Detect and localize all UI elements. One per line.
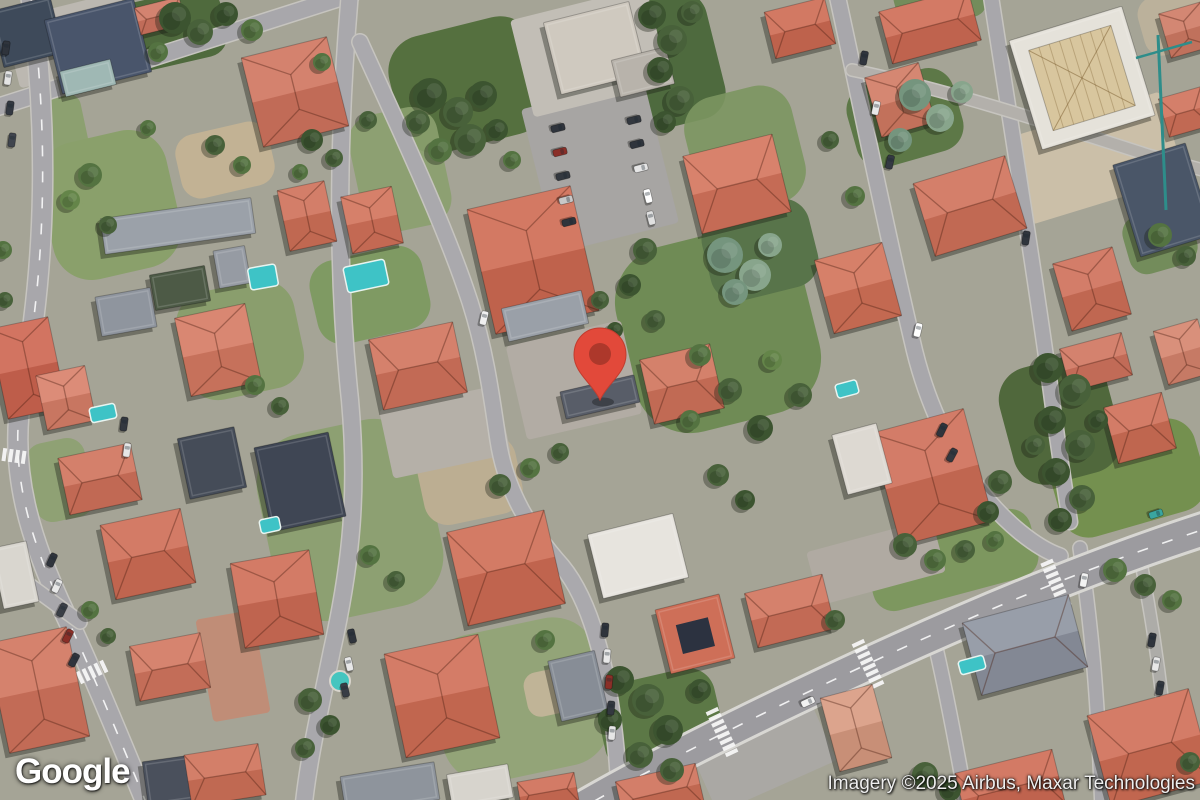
imagery-attribution: Imagery ©2025 Airbus, Maxar Technologies — [828, 773, 1195, 795]
map-canvas[interactable]: Google Imagery ©2025 Airbus, Maxar Techn… — [0, 0, 1200, 800]
satellite-imagery[interactable] — [0, 0, 1200, 800]
google-logo[interactable]: Google — [15, 752, 130, 792]
